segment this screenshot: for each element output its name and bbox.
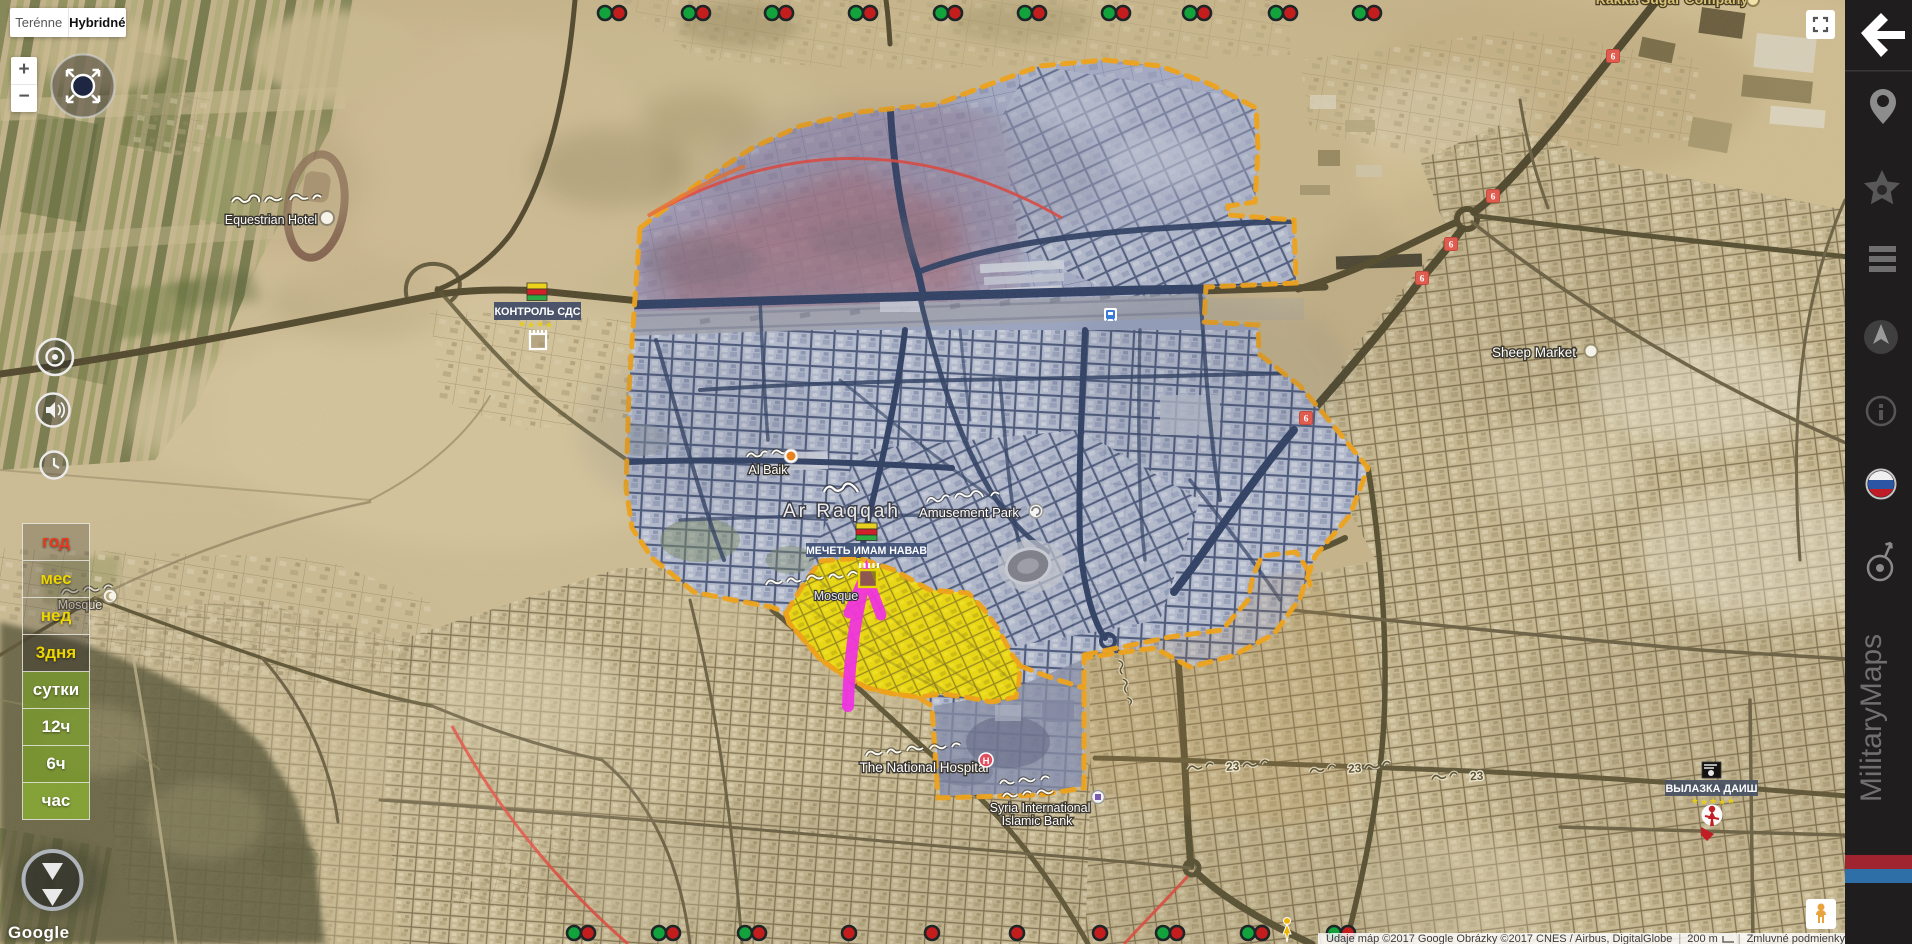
svg-text:МЕЧЕТЬ ИМАМ НАВАВ: МЕЧЕТЬ ИМАМ НАВАВ	[806, 545, 927, 557]
svg-text:ВЫЛАЗКА ДАИШ: ВЫЛАЗКА ДАИШ	[1666, 783, 1758, 795]
svg-text:The National Hospital: The National Hospital	[859, 760, 988, 775]
svg-text:MilitaryMaps: MilitaryMaps	[1855, 634, 1888, 802]
svg-text:Al Baik: Al Baik	[749, 463, 789, 477]
svg-text:Syria International: Syria International	[990, 801, 1091, 815]
svg-text:Equestrian Hotel: Equestrian Hotel	[225, 213, 317, 227]
svg-text:23: 23	[1348, 761, 1363, 776]
svg-text:КОНТРОЛЬ СДС: КОНТРОЛЬ СДС	[494, 306, 580, 318]
svg-text:H: H	[983, 756, 990, 767]
svg-text:Mosque: Mosque	[814, 589, 859, 603]
svg-text:Sheep Market: Sheep Market	[1492, 345, 1576, 360]
svg-text:Rakka Sugar Company: Rakka Sugar Company	[1596, 0, 1749, 7]
svg-text:Islamic Bank: Islamic Bank	[1002, 814, 1074, 828]
svg-text:23: 23	[1226, 759, 1240, 774]
svg-text:Ar Raqqah: Ar Raqqah	[783, 501, 901, 522]
svg-text:Amusement Park: Amusement Park	[919, 505, 1019, 520]
svg-text:23: 23	[1470, 769, 1484, 784]
